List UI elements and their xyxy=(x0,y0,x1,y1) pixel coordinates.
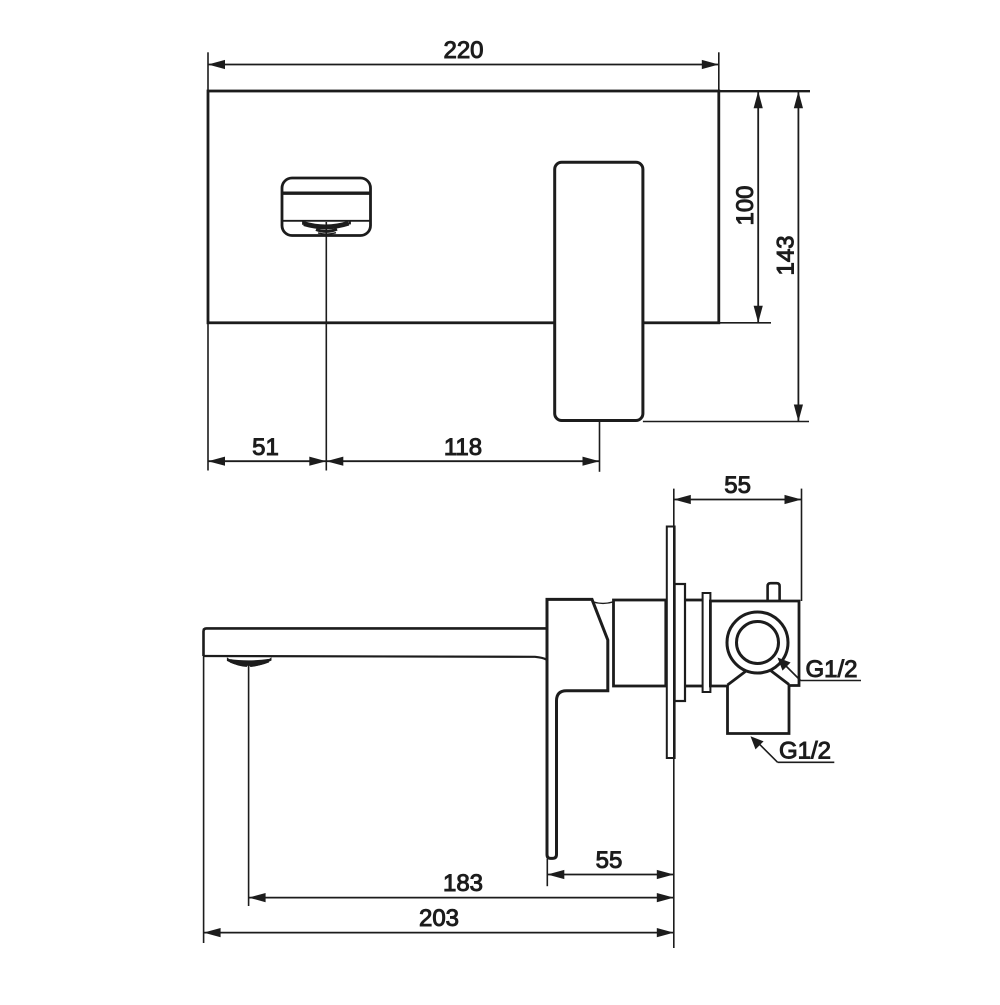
svg-text:143: 143 xyxy=(773,235,800,275)
svg-text:G1/2: G1/2 xyxy=(806,656,858,683)
svg-text:55: 55 xyxy=(596,847,623,874)
svg-text:51: 51 xyxy=(252,434,279,461)
svg-text:100: 100 xyxy=(732,185,759,225)
svg-text:203: 203 xyxy=(419,905,459,932)
svg-text:118: 118 xyxy=(444,434,482,461)
svg-text:G1/2: G1/2 xyxy=(779,738,831,765)
svg-text:55: 55 xyxy=(724,472,751,499)
svg-text:220: 220 xyxy=(443,37,483,64)
svg-text:183: 183 xyxy=(443,870,483,897)
